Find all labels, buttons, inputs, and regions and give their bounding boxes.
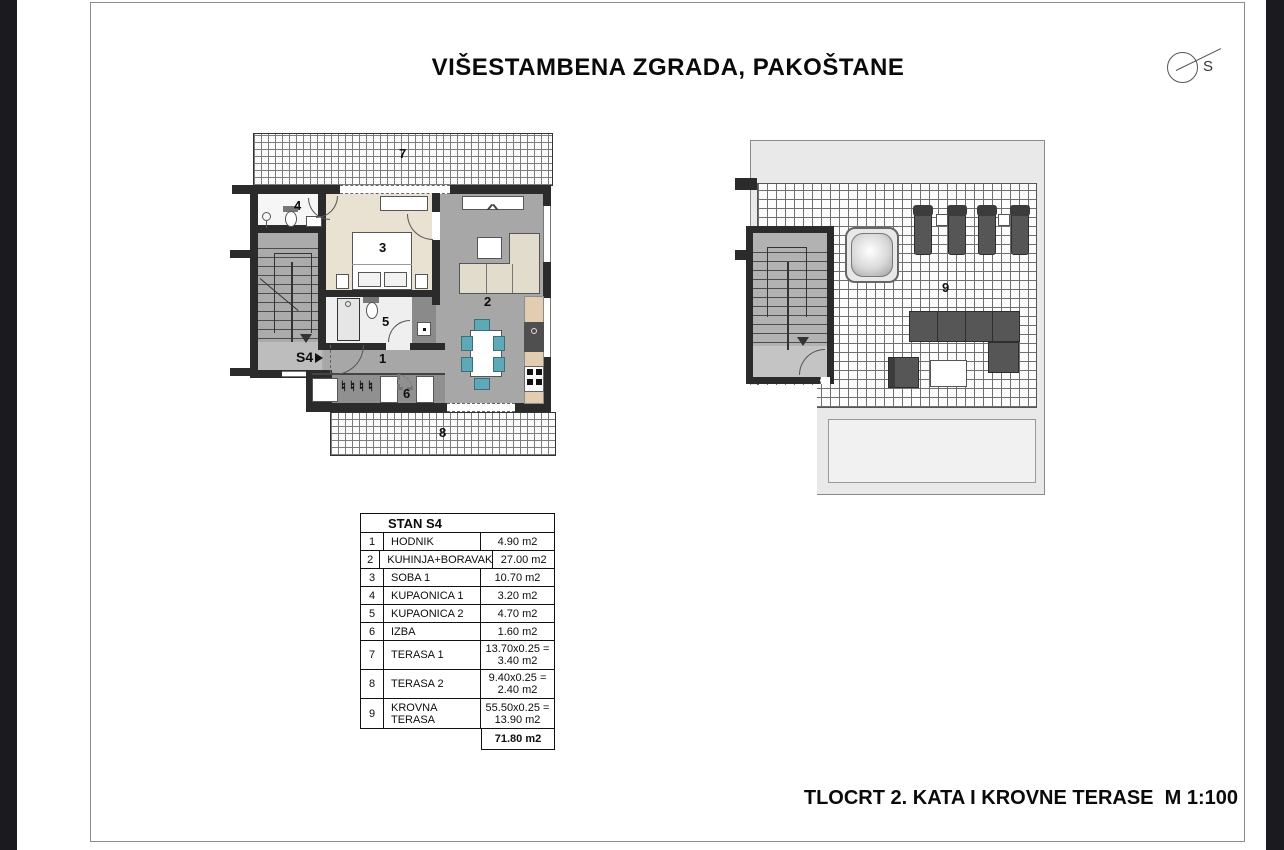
row-value: 55.50x0.25 =13.90 m2 — [480, 699, 554, 728]
storage-shelf — [416, 376, 434, 403]
outdoor-armchair-back — [889, 358, 895, 387]
outdoor-sofa-seam — [992, 312, 993, 341]
sun-lounger-headrest — [947, 205, 967, 216]
row-name: TERASA 2 — [384, 670, 480, 698]
roof-stair-down-arrow-icon — [797, 337, 809, 346]
sofa-seam — [486, 264, 487, 293]
door-opening — [386, 343, 410, 350]
row-number: 7 — [361, 641, 384, 669]
stair-guardrail — [274, 253, 312, 333]
row-name: KUHINJA+BORAVAK — [380, 551, 492, 568]
outdoor-sofa-chaise — [988, 342, 1019, 373]
hanger-icon — [359, 378, 364, 396]
stove-burner-icon — [536, 379, 542, 385]
kitchen-faucet-icon — [531, 328, 537, 334]
row-number: 2 — [361, 551, 380, 568]
row-name: HODNIK — [384, 533, 480, 550]
storage-shelf — [380, 376, 398, 403]
table-row: 8 TERASA 2 9.40x0.25 =2.40 m2 — [361, 670, 554, 699]
dining-chair — [474, 378, 490, 390]
table-row: 9 KROVNA TERASA 55.50x0.25 =13.90 m2 — [361, 699, 554, 728]
row-number: 4 — [361, 587, 384, 604]
dining-chair — [474, 319, 490, 331]
row-number: 9 — [361, 699, 384, 728]
hanger-icon — [350, 378, 355, 396]
bed-pillow — [384, 272, 407, 287]
shoe-cabinet — [312, 378, 338, 402]
hot-tub-basin — [851, 233, 893, 277]
window — [543, 206, 551, 262]
row-number: 8 — [361, 670, 384, 698]
dining-chair — [461, 357, 473, 372]
row-value: 13.70x0.25 =3.40 m2 — [480, 641, 554, 669]
sofa-chaise — [509, 233, 540, 264]
wall-stub — [735, 178, 757, 190]
roof-stair-divider — [787, 262, 789, 350]
nightstand — [336, 274, 349, 289]
row-value: 27.00 m2 — [492, 551, 554, 568]
nightstand — [415, 274, 428, 289]
row-number: 6 — [361, 623, 384, 640]
living-closet: ∧ — [462, 196, 524, 210]
wall — [432, 193, 440, 305]
wall-stub — [230, 368, 250, 376]
shower-faucet-icon — [345, 301, 351, 307]
bed-line — [352, 264, 412, 265]
roof-door-opening — [820, 377, 830, 384]
bed-pillow — [358, 272, 381, 287]
window — [543, 298, 551, 357]
sink-stand-icon — [266, 220, 267, 228]
tv-table — [477, 237, 502, 259]
sun-lounger-headrest — [1010, 205, 1030, 216]
wall — [250, 193, 258, 378]
area-table: STAN S4 1 HODNIK 4.90 m2 2 KUHINJA+BORAV… — [360, 513, 555, 750]
room-label-soba: 3 — [379, 241, 386, 254]
row-name: TERASA 1 — [384, 641, 480, 669]
room-label-kupaonica-1: 4 — [294, 199, 301, 212]
area-table-header: STAN S4 — [360, 513, 555, 533]
dining-chair — [461, 336, 473, 351]
row-value: 4.90 m2 — [480, 533, 554, 550]
table-row: 4 KUPAONICA 1 3.20 m2 — [361, 587, 554, 605]
window — [282, 371, 308, 377]
entrance-arrow-icon — [315, 353, 323, 363]
toilet-bowl-icon — [285, 211, 297, 227]
area-table-title: STAN S4 — [361, 516, 442, 531]
closet-chevron-icon: ∧ — [483, 202, 502, 213]
area-table-total-row: 71.80 m2 — [360, 729, 555, 750]
sliding-door-opening — [447, 403, 515, 412]
shaft-fixture-dot — [423, 328, 426, 331]
row-name: KROVNA TERASA — [384, 699, 480, 728]
kitchen-sink-unit — [524, 322, 544, 352]
hanger-icon — [341, 378, 346, 396]
table-row: 1 HODNIK 4.90 m2 — [361, 533, 554, 551]
toilet-bowl-icon — [366, 302, 378, 319]
stove-burner-icon — [536, 369, 542, 375]
entry-door-line — [330, 345, 332, 373]
outdoor-sofa-seam — [965, 312, 966, 341]
side-table — [936, 214, 948, 226]
row-number: 1 — [361, 533, 384, 550]
north-symbol: S — [1160, 40, 1250, 90]
wall — [318, 290, 440, 297]
table-row: 6 IZBA 1.60 m2 — [361, 623, 554, 641]
sofa — [459, 263, 540, 294]
room-label-kuhinja-boravak: 2 — [484, 295, 491, 308]
left-dark-bar — [0, 0, 17, 850]
hanger-icon — [368, 378, 373, 396]
entrance-label: S4 — [296, 351, 313, 364]
room-label-hodnik: 1 — [379, 352, 386, 365]
row-number: 5 — [361, 605, 384, 622]
coffee-table — [930, 360, 967, 387]
wall — [326, 403, 551, 412]
row-value: 9.40x0.25 =2.40 m2 — [480, 670, 554, 698]
row-value: 4.70 m2 — [480, 605, 554, 622]
stair-down-arrow-icon — [300, 334, 312, 343]
room-label-terasa-2: 8 — [439, 426, 446, 439]
room-label-terasa-1: 7 — [399, 147, 406, 160]
room-label-krovna-terasa: 9 — [942, 281, 949, 294]
stove-burner-icon — [527, 369, 533, 375]
table-row: 5 KUPAONICA 2 4.70 m2 — [361, 605, 554, 623]
sheet-border — [90, 2, 1245, 842]
row-value: 10.70 m2 — [480, 569, 554, 586]
row-name: SOBA 1 — [384, 569, 480, 586]
north-label: S — [1203, 58, 1213, 75]
dining-chair — [493, 336, 505, 351]
drawing-caption: TLOCRT 2. KATA I KROVNE TERASE M 1:100 — [804, 787, 1238, 810]
table-row: 3 SOBA 1 10.70 m2 — [361, 569, 554, 587]
table-row: 2 KUHINJA+BORAVAK 27.00 m2 — [361, 551, 554, 569]
partition-line — [312, 373, 445, 375]
row-name: KUPAONICA 1 — [384, 587, 480, 604]
right-dark-bar — [1266, 0, 1284, 850]
row-name: KUPAONICA 2 — [384, 605, 480, 622]
entrance-marker: S4 — [296, 351, 323, 364]
sun-lounger-headrest — [977, 205, 997, 216]
room-label-izba: 6 — [403, 387, 410, 400]
row-value: 3.20 m2 — [480, 587, 554, 604]
side-table — [998, 214, 1010, 226]
row-value: 1.60 m2 — [480, 623, 554, 640]
door-opening — [432, 212, 440, 240]
sofa-seam — [512, 264, 513, 293]
canopy — [828, 419, 1036, 483]
wall — [318, 225, 326, 345]
row-name: IZBA — [384, 623, 480, 640]
area-table-rows: 1 HODNIK 4.90 m2 2 KUHINJA+BORAVAK 27.00… — [360, 533, 555, 729]
row-number: 3 — [361, 569, 384, 586]
bedroom-wardrobe — [380, 196, 428, 211]
room-label-kupaonica-2: 5 — [382, 315, 389, 328]
stove-burner-icon — [527, 379, 533, 385]
dining-chair — [493, 357, 505, 372]
roof-cutout — [737, 385, 817, 498]
table-row: 7 TERASA 1 13.70x0.25 =3.40 m2 — [361, 641, 554, 670]
sun-lounger-headrest — [913, 205, 933, 216]
wall-stub — [230, 250, 250, 258]
drawing-title: VIŠESTAMBENA ZGRADA, PAKOŠTANE — [90, 54, 1246, 82]
area-table-total: 71.80 m2 — [481, 729, 555, 750]
outdoor-sofa-seam — [937, 312, 938, 341]
stair-divider — [291, 262, 293, 342]
